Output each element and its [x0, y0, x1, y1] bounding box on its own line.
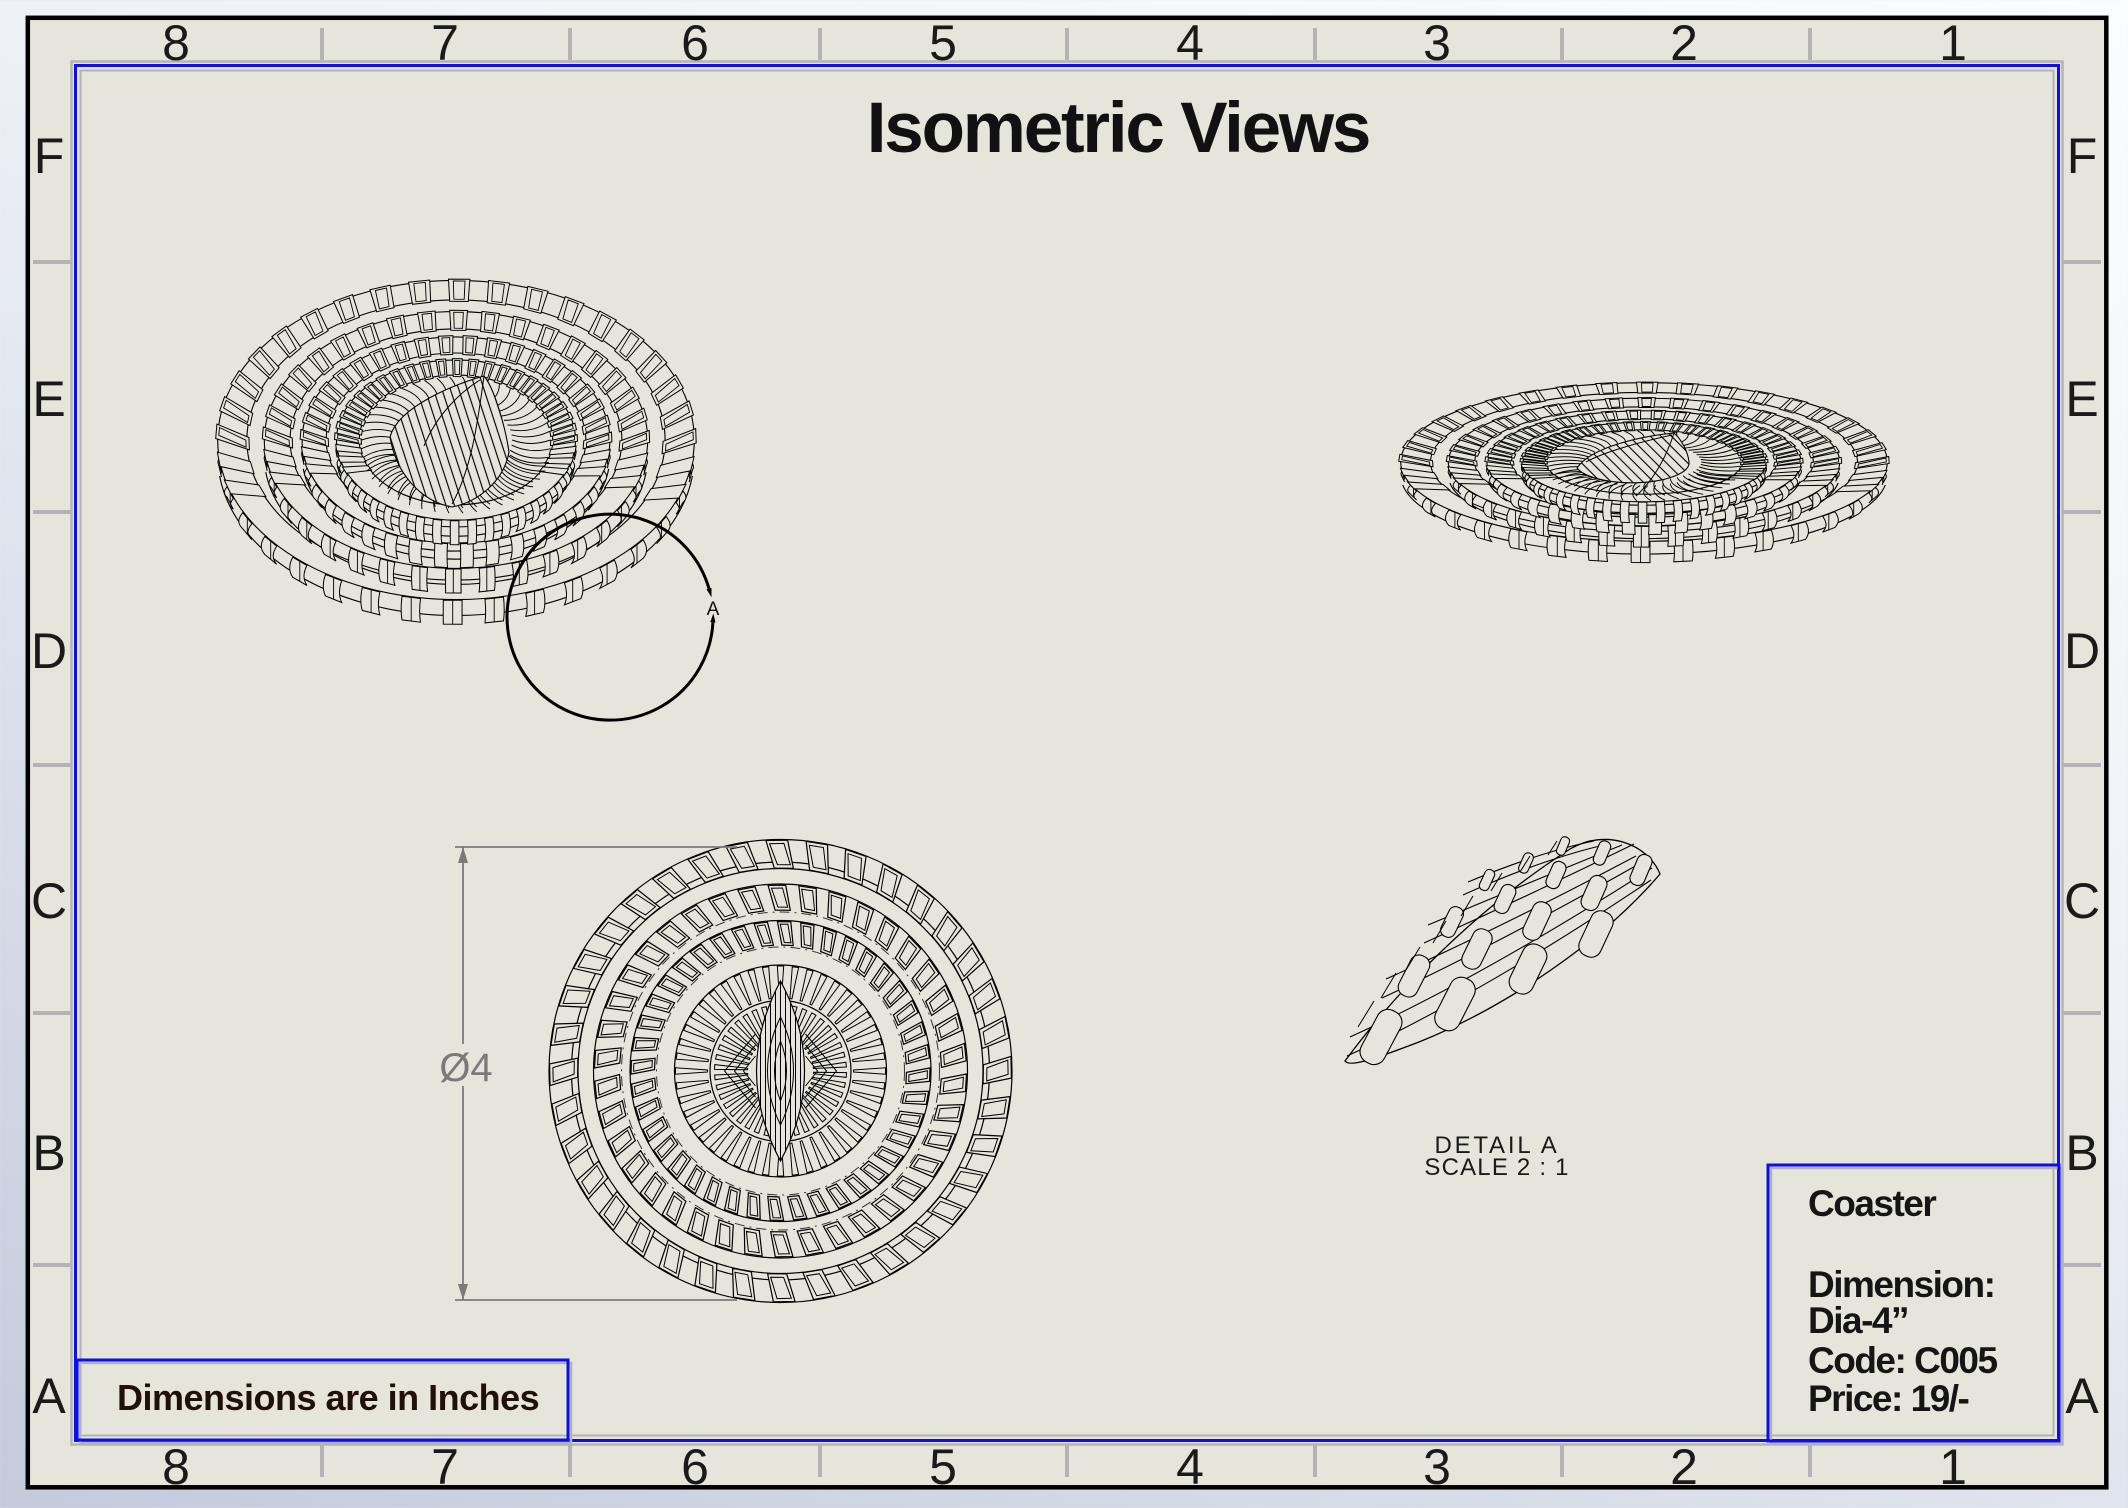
- svg-text:8: 8: [162, 1439, 190, 1495]
- svg-text:B: B: [32, 1125, 65, 1181]
- svg-text:B: B: [2065, 1125, 2098, 1181]
- svg-text:F: F: [2067, 128, 2098, 184]
- svg-text:6: 6: [681, 15, 709, 71]
- svg-text:SCALE 2 : 1: SCALE 2 : 1: [1424, 1154, 1569, 1181]
- svg-text:A: A: [707, 599, 720, 620]
- svg-text:Code: C005: Code: C005: [1808, 1340, 1997, 1381]
- svg-text:Price: 19/-: Price: 19/-: [1808, 1378, 1969, 1419]
- svg-text:5: 5: [929, 15, 957, 71]
- svg-text:6: 6: [681, 1439, 709, 1495]
- svg-text:7: 7: [431, 1439, 459, 1495]
- svg-text:1: 1: [1939, 15, 1967, 71]
- svg-text:C: C: [2064, 873, 2100, 929]
- svg-text:Dimension:: Dimension:: [1808, 1264, 1994, 1305]
- svg-text:3: 3: [1423, 1439, 1451, 1495]
- svg-text:Isometric Views: Isometric Views: [867, 89, 1369, 168]
- svg-text:4: 4: [1176, 15, 1204, 71]
- svg-text:5: 5: [929, 1439, 957, 1495]
- svg-text:2: 2: [1670, 1439, 1698, 1495]
- svg-text:C: C: [31, 873, 67, 929]
- svg-text:8: 8: [162, 15, 190, 71]
- svg-text:Dimensions are in Inches: Dimensions are in Inches: [117, 1377, 539, 1418]
- svg-text:3: 3: [1423, 15, 1451, 71]
- svg-text:D: D: [31, 623, 67, 679]
- svg-text:Ø4: Ø4: [439, 1046, 492, 1090]
- svg-text:Coaster: Coaster: [1808, 1183, 1936, 1224]
- svg-text:Dia-4”: Dia-4”: [1808, 1300, 1908, 1341]
- svg-text:2: 2: [1670, 15, 1698, 71]
- svg-text:F: F: [34, 128, 65, 184]
- svg-text:E: E: [2065, 371, 2098, 427]
- svg-text:A: A: [32, 1368, 66, 1424]
- svg-text:7: 7: [431, 15, 459, 71]
- svg-text:1: 1: [1939, 1439, 1967, 1495]
- svg-text:D: D: [2064, 623, 2100, 679]
- svg-text:E: E: [32, 371, 65, 427]
- svg-text:4: 4: [1176, 1439, 1204, 1495]
- svg-text:A: A: [2065, 1368, 2099, 1424]
